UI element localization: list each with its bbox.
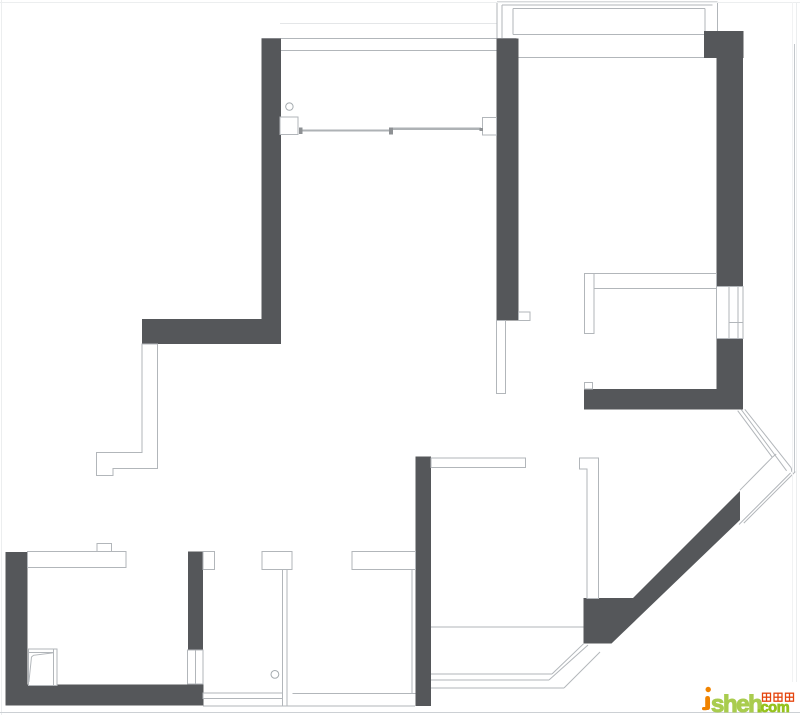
svg-text:.com: .com [757, 700, 789, 715]
svg-text:sheh: sheh [711, 691, 762, 715]
